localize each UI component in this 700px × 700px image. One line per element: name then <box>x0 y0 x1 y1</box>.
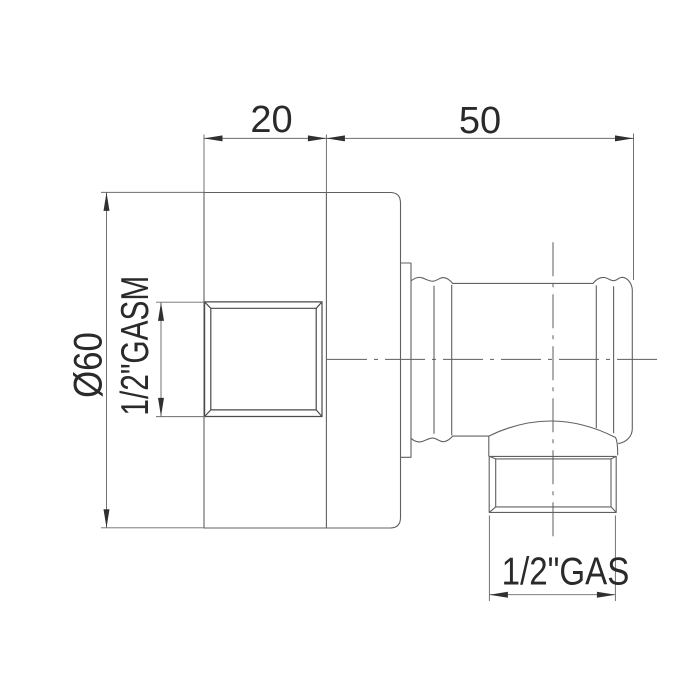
svg-text:1/2"GASM: 1/2"GASM <box>114 276 156 416</box>
svg-text:50: 50 <box>459 100 501 142</box>
svg-text:20: 20 <box>250 99 292 141</box>
svg-text:1/2"GAS: 1/2"GAS <box>502 550 630 593</box>
svg-text:Ø60: Ø60 <box>65 332 110 398</box>
